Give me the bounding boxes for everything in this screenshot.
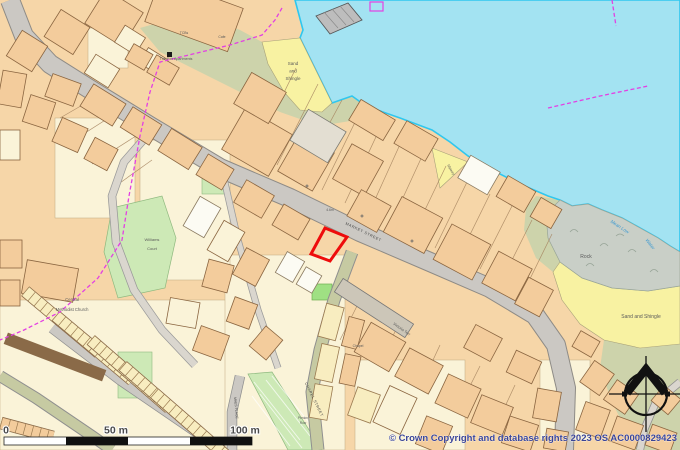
map-label: The Pier Apartments bbox=[160, 57, 193, 61]
scale-label-100m: 100 m bbox=[230, 425, 260, 437]
map-label: Chapel bbox=[353, 344, 364, 348]
map-label: Sand and Shingle bbox=[621, 314, 661, 320]
map-label: 4.6m bbox=[326, 208, 334, 212]
map-label: and bbox=[289, 69, 297, 74]
map-label: Penlon bbox=[298, 416, 308, 420]
map-label: Shingle bbox=[285, 76, 301, 81]
map-canvas[interactable]: SandandShingleSand and ShingleRockMean L… bbox=[0, 0, 680, 450]
map-label: Methodist Church bbox=[56, 307, 89, 312]
map-label: Cafe bbox=[218, 35, 225, 39]
map-viewport[interactable]: SandandShingleSand and ShingleRockMean L… bbox=[0, 0, 680, 450]
map-label: Central bbox=[65, 297, 79, 302]
map-label: Rock bbox=[580, 254, 592, 260]
map-label: TCBs bbox=[180, 31, 189, 35]
map-label: Court bbox=[147, 246, 158, 251]
copyright-text: © Crown Copyright and database rights 20… bbox=[389, 433, 677, 444]
map-label: Williams bbox=[145, 237, 160, 242]
scale-label-50m: 50 m bbox=[104, 425, 128, 437]
scale-label-0: 0 bbox=[3, 425, 9, 437]
map-label: Sand bbox=[288, 61, 299, 66]
map-label: Row bbox=[300, 421, 307, 425]
